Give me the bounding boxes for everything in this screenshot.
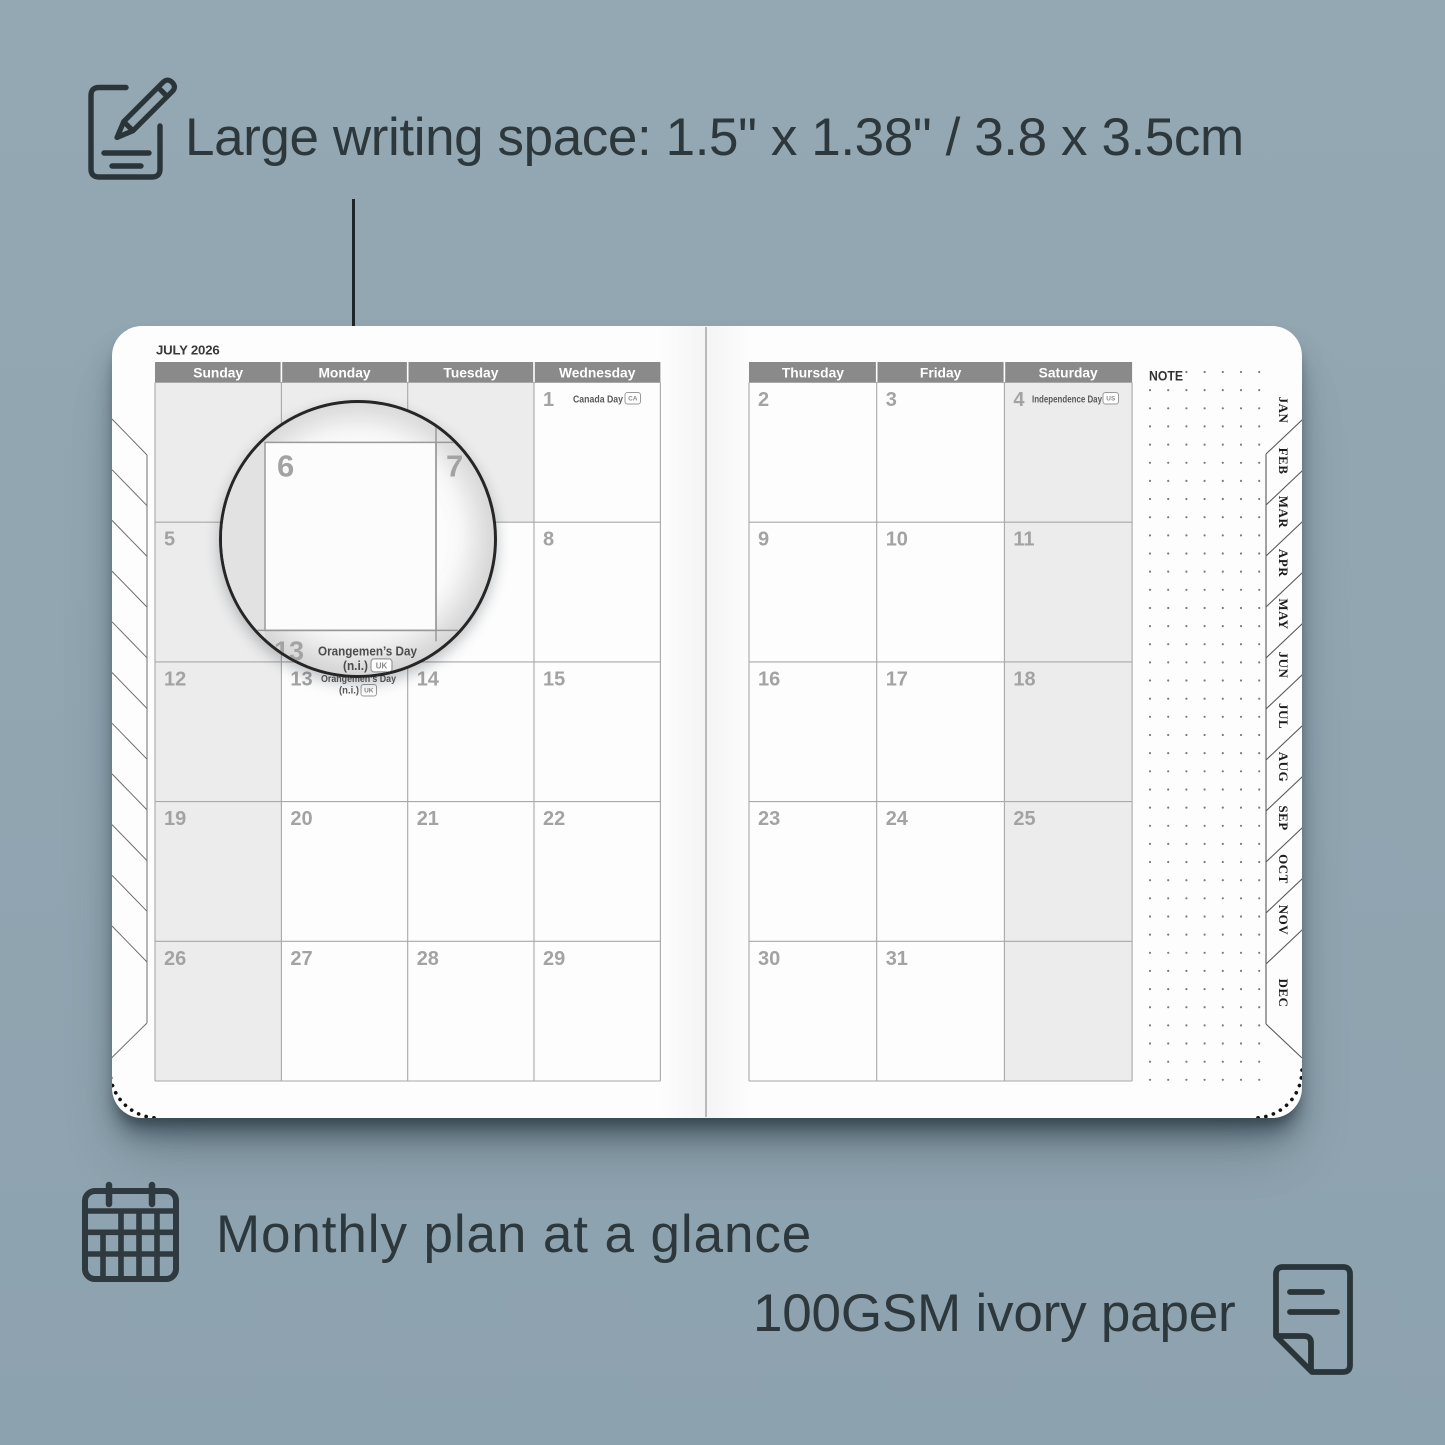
- svg-text:28: 28: [417, 948, 439, 970]
- svg-text:16: 16: [758, 668, 780, 690]
- svg-text:23: 23: [758, 808, 780, 830]
- svg-text:Wednesday: Wednesday: [559, 366, 636, 381]
- svg-text:Thursday: Thursday: [782, 366, 844, 381]
- svg-text:18: 18: [1013, 668, 1035, 690]
- svg-text:3: 3: [886, 389, 897, 411]
- svg-text:20: 20: [290, 808, 312, 830]
- svg-text:1: 1: [543, 389, 554, 411]
- svg-text:(n.i.): (n.i.): [339, 686, 359, 697]
- svg-text:DEC: DEC: [1276, 979, 1291, 1008]
- svg-text:JUN: JUN: [1276, 652, 1291, 679]
- svg-text:30: 30: [758, 948, 780, 970]
- svg-text:UK: UK: [364, 688, 374, 695]
- svg-text:24: 24: [886, 808, 909, 830]
- svg-text:Friday: Friday: [920, 366, 962, 381]
- svg-text:NOV: NOV: [1276, 905, 1291, 936]
- svg-text:11: 11: [1013, 529, 1034, 551]
- svg-text:FEB: FEB: [1276, 448, 1291, 475]
- svg-text:13: 13: [290, 668, 312, 690]
- svg-text:29: 29: [543, 948, 565, 970]
- svg-text:Orangemen’s Day: Orangemen’s Day: [318, 643, 418, 658]
- svg-text:US: US: [1106, 396, 1116, 403]
- svg-text:MAR: MAR: [1276, 496, 1291, 529]
- svg-text:22: 22: [543, 808, 565, 830]
- svg-text:JULY 2026: JULY 2026: [156, 343, 219, 358]
- svg-text:26: 26: [164, 948, 186, 970]
- svg-text:SEP: SEP: [1276, 805, 1291, 830]
- svg-text:CA: CA: [628, 396, 638, 403]
- svg-text:Independence Day: Independence Day: [1032, 395, 1102, 406]
- svg-text:19: 19: [164, 808, 186, 830]
- svg-text:Saturday: Saturday: [1039, 366, 1098, 381]
- svg-text:Monday: Monday: [318, 366, 370, 381]
- svg-text:NOTE: NOTE: [1149, 369, 1183, 384]
- svg-text:4: 4: [1013, 389, 1025, 411]
- svg-text:JUL: JUL: [1276, 703, 1291, 729]
- svg-text:25: 25: [1013, 808, 1035, 830]
- svg-text:MAY: MAY: [1276, 598, 1291, 629]
- svg-text:27: 27: [290, 948, 312, 970]
- svg-text:12: 12: [164, 668, 186, 690]
- svg-text:UK: UK: [376, 661, 388, 670]
- svg-text:31: 31: [886, 948, 908, 970]
- svg-text:9: 9: [758, 529, 769, 551]
- svg-text:5: 5: [164, 529, 175, 551]
- svg-text:17: 17: [886, 668, 908, 690]
- svg-text:Canada Day: Canada Day: [573, 395, 623, 406]
- svg-text:7: 7: [446, 448, 463, 483]
- svg-text:JAN: JAN: [1276, 397, 1291, 424]
- svg-text:14: 14: [417, 668, 440, 690]
- svg-text:Sunday: Sunday: [193, 366, 243, 381]
- svg-text:(n.i.): (n.i.): [343, 657, 368, 672]
- svg-text:APR: APR: [1276, 549, 1291, 577]
- svg-text:21: 21: [417, 808, 439, 830]
- svg-text:2: 2: [758, 389, 769, 411]
- svg-text:OCT: OCT: [1276, 854, 1291, 884]
- svg-text:15: 15: [543, 668, 565, 690]
- svg-text:8: 8: [543, 529, 554, 551]
- svg-text:6: 6: [277, 448, 294, 483]
- svg-text:Tuesday: Tuesday: [443, 366, 498, 381]
- svg-text:10: 10: [886, 529, 908, 551]
- svg-text:AUG: AUG: [1276, 752, 1291, 782]
